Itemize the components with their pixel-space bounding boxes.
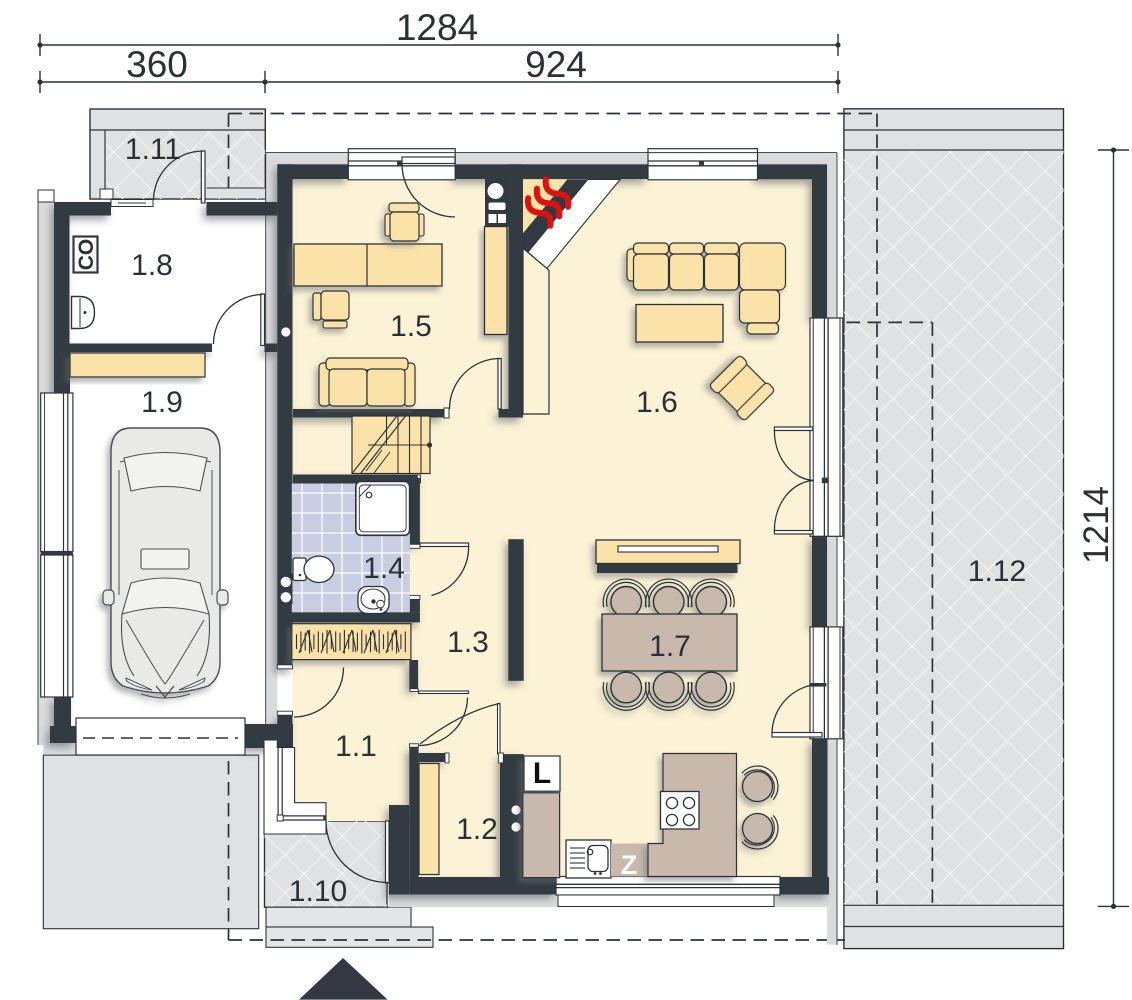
svg-text:CO: CO — [75, 239, 98, 271]
svg-text:1.3: 1.3 — [447, 626, 489, 659]
svg-text:L: L — [533, 757, 551, 790]
svg-text:1.8: 1.8 — [131, 249, 173, 282]
svg-text:Z: Z — [621, 850, 638, 880]
svg-text:1284: 1284 — [396, 7, 478, 48]
svg-text:1.4: 1.4 — [363, 552, 405, 585]
svg-text:1.7: 1.7 — [649, 630, 691, 663]
svg-text:360: 360 — [126, 44, 188, 85]
svg-text:1.10: 1.10 — [289, 875, 347, 908]
svg-text:1.12: 1.12 — [968, 555, 1026, 588]
svg-text:1.5: 1.5 — [390, 310, 432, 343]
svg-text:924: 924 — [525, 44, 587, 85]
svg-text:1.9: 1.9 — [141, 386, 183, 419]
svg-text:1.6: 1.6 — [636, 386, 678, 419]
svg-text:1.1: 1.1 — [335, 730, 377, 763]
svg-text:1.2: 1.2 — [456, 813, 498, 846]
svg-text:1214: 1214 — [1077, 486, 1116, 564]
